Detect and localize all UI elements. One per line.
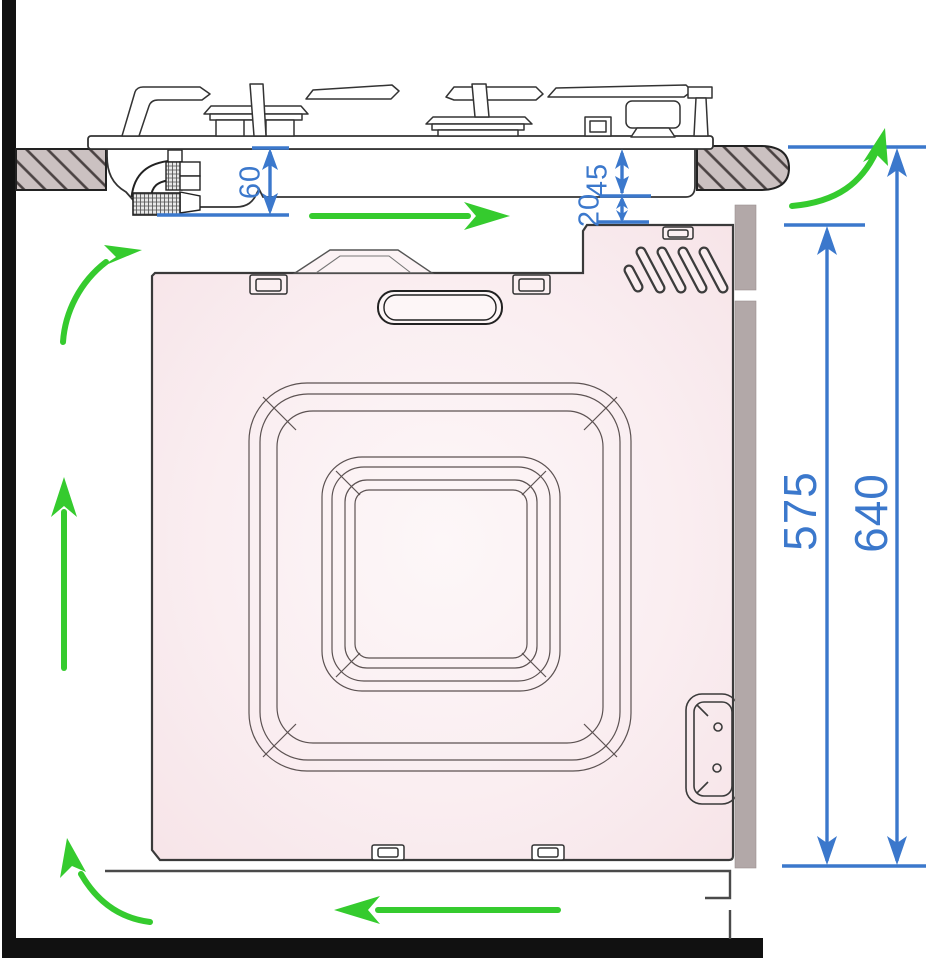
hob-grates-and-burners: [122, 84, 712, 137]
hob-plate: [88, 136, 713, 149]
airflow-arrow-top-right: [792, 128, 888, 206]
grate-arm: [446, 87, 543, 100]
dimension-label-20: 20: [576, 193, 605, 227]
edge-tab: [688, 87, 712, 98]
grate-arm: [122, 87, 210, 136]
airflow-arrow-left-vertical: [51, 477, 77, 668]
grate-arm: [306, 85, 399, 99]
vent-slot-handle: [378, 291, 502, 324]
airflow-arrow-bottom: [334, 896, 558, 924]
installation-diagram: 60 45 20 575 640: [0, 0, 926, 960]
control-box: [626, 101, 680, 128]
grate-finger: [472, 84, 489, 117]
grate-arm: [548, 85, 692, 97]
burner-cap: [426, 117, 532, 124]
bottom-tab: [532, 845, 564, 860]
dimension-label-640: 640: [848, 473, 894, 553]
burner-body: [438, 130, 518, 136]
mounting-tab: [663, 227, 693, 239]
airflow-arrow-bottom-left: [60, 838, 150, 922]
floor-bar: [2, 938, 763, 958]
oven-body: [152, 225, 738, 860]
worktop-right: [697, 146, 789, 190]
dimension-label-60: 60: [237, 165, 266, 199]
control-box-base: [631, 128, 675, 137]
cabinet-base-lines: [105, 871, 730, 939]
mounting-tab: [513, 275, 550, 294]
airflow-arrow-mid-left: [63, 245, 142, 342]
dimension-label-575: 575: [777, 471, 823, 551]
mounting-tab: [250, 275, 287, 294]
gas-inlet-hump: [295, 250, 432, 273]
airflow-arrow-under-hob: [312, 202, 510, 230]
cabinet-side-panel: [735, 205, 756, 868]
burner-ring: [432, 124, 524, 130]
worktop-left: [16, 149, 106, 190]
bottom-tab: [372, 845, 404, 860]
wall-left: [2, 0, 16, 957]
